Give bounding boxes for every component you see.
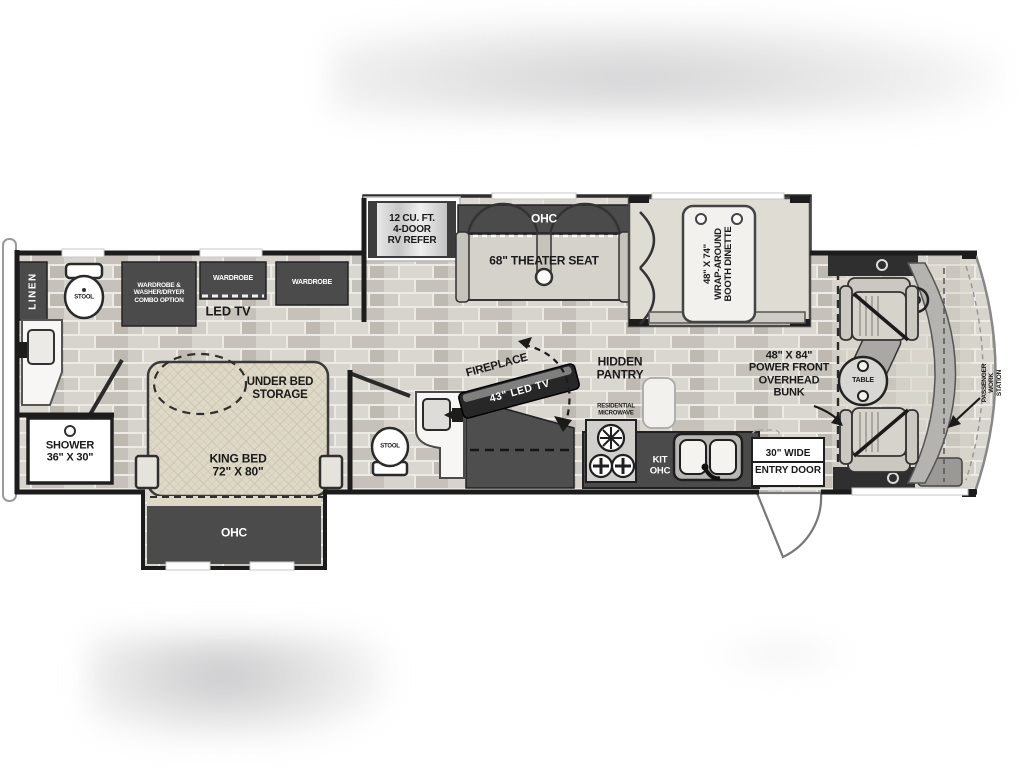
nightstand-left: [136, 456, 158, 488]
toilet-icon-2: [372, 428, 408, 475]
passenger-work-station-label: PASSENGER WORK STATION: [981, 364, 1003, 403]
shower-drain-icon: [65, 426, 75, 436]
hidden-pantry-label: HIDDEN PANTRY: [597, 356, 644, 383]
theater-ohc-label: OHC: [531, 212, 557, 225]
floorplan-image: LINEN STOOL WARDROBE & WASHER/DRYER COMB…: [0, 0, 1024, 768]
cab-upper-cabinet: [828, 255, 918, 276]
linen-label: LINEN: [27, 272, 38, 310]
theater-seat-label: 68" THEATER SEAT: [489, 254, 598, 267]
shower-label: SHOWER 36" X 30": [46, 440, 94, 465]
table-label: TABLE: [852, 377, 874, 385]
under-bed-storage-label: UNDER BED STORAGE: [247, 376, 314, 402]
kit-ohc-label: KIT OHC: [650, 455, 671, 476]
stove-icon: [586, 420, 636, 482]
wardrobe-combo-label: WARDROBE & WASHER/DRYER COMBO OPTION: [134, 282, 184, 304]
wardrobe-label-2: WARDROBE: [292, 279, 332, 287]
king-bed-label: KING BED 72" X 80": [209, 453, 266, 480]
cupholder-icon: [536, 269, 552, 285]
bed-ohc-label: OHC: [221, 526, 247, 539]
entry-door-label-line2: ENTRY DOOR: [753, 461, 823, 478]
entry-door-label-line1: 30" WIDE: [753, 446, 823, 461]
stool-label-mid: STOOL: [380, 444, 400, 451]
rear-cap-wall: [3, 239, 16, 501]
entry-door-label-box: 30" WIDE ENTRY DOOR: [751, 437, 825, 487]
captain-chair-passenger: [840, 408, 918, 472]
booth-dinette-label: 48" X 74" WRAP-AROUND BOOTH DINETTE: [703, 227, 735, 302]
residential-microwave-label: RESIDENTIAL MICROWAVE: [597, 403, 635, 416]
overhead-bunk-label: 48" X 84" POWER FRONT OVERHEAD BUNK: [749, 349, 829, 398]
toilet-icon: [65, 264, 103, 318]
kitchen-island-counter: [643, 378, 675, 428]
kitchen-sink-icon: [674, 434, 742, 480]
led-tv-label: LED TV: [205, 305, 250, 320]
captain-chair-driver: [840, 278, 918, 340]
bath-sink-icon: [18, 320, 62, 405]
wardrobe-label-1: WARDROBE: [213, 275, 253, 283]
nightstand-right: [320, 456, 342, 488]
entry-door-swing: [757, 493, 821, 557]
stool-label-rear: STOOL: [74, 295, 94, 302]
refrigerator-label: 12 CU. FT. 4-DOOR RV REFER: [388, 213, 437, 247]
